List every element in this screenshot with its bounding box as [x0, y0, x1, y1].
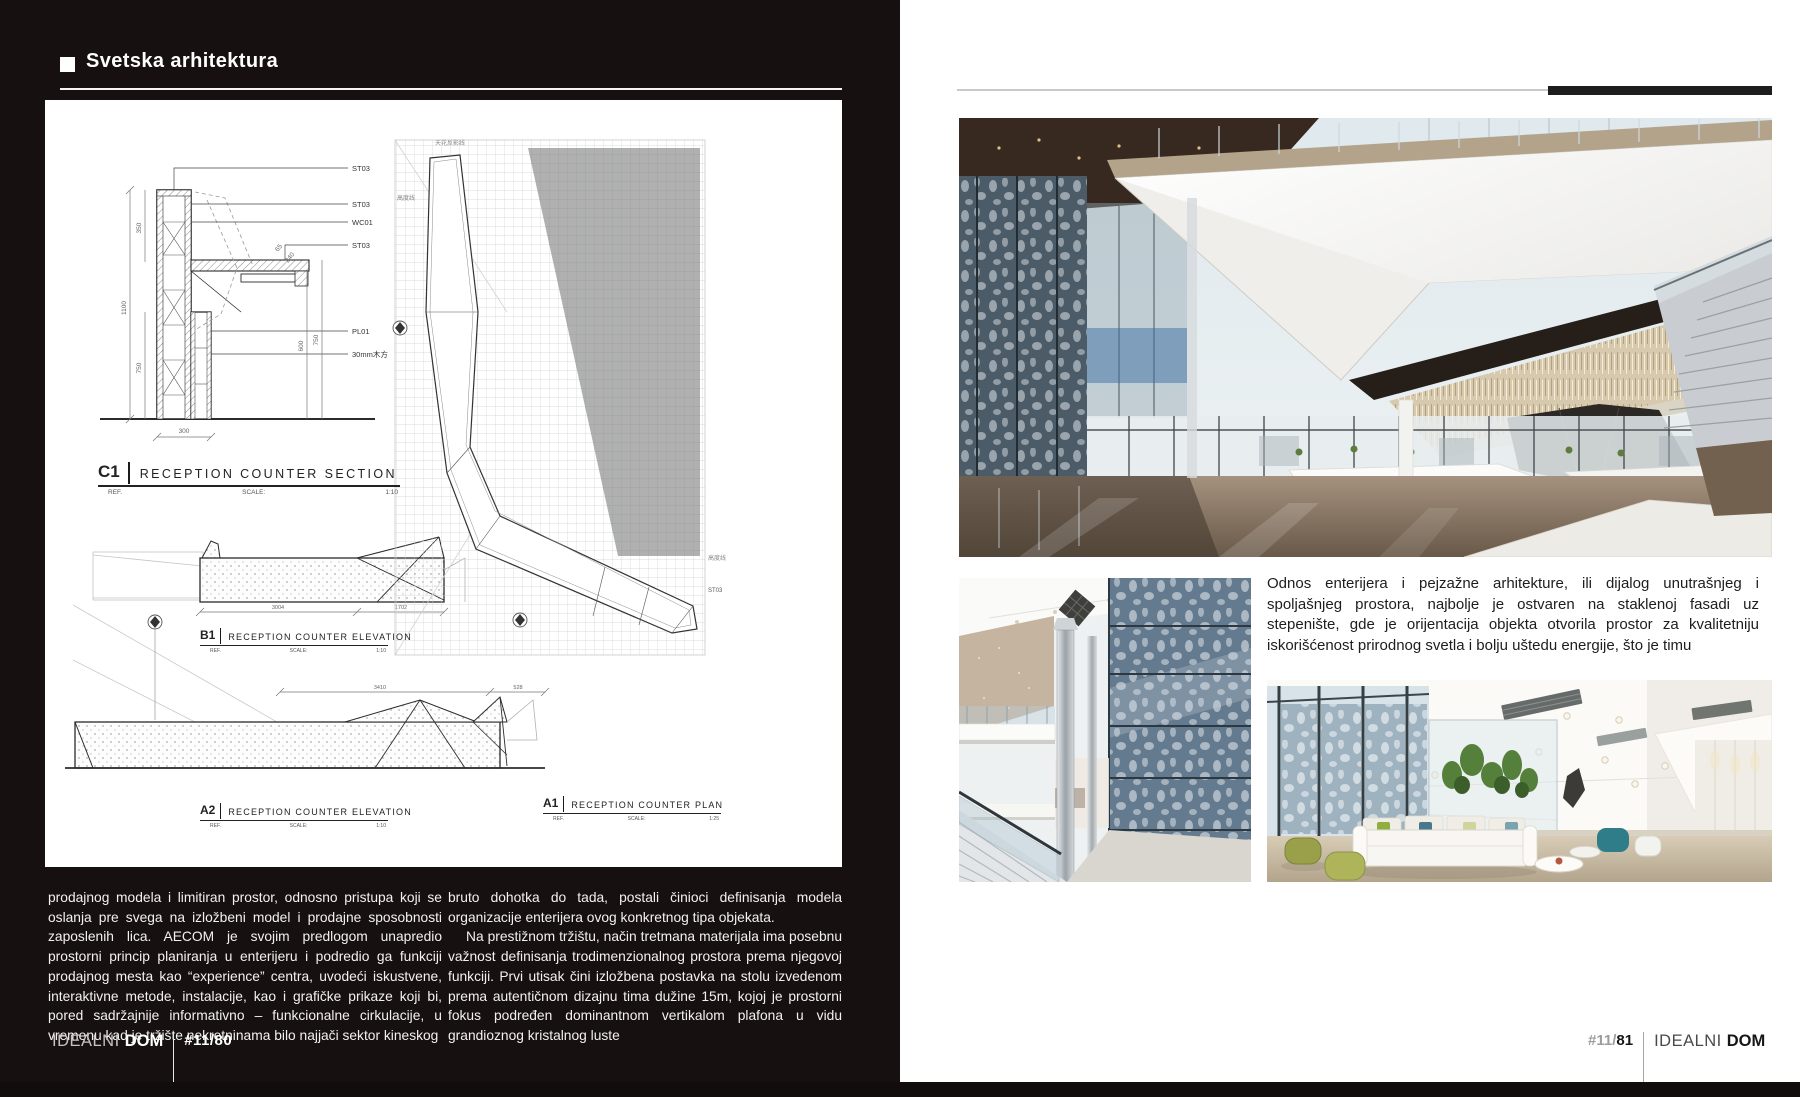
dim-3410: 3410 — [374, 685, 386, 691]
page-number: 81 — [1616, 1032, 1633, 1049]
section-title: Svetska arhitektura — [86, 50, 278, 73]
drawing-title: RECEPTION COUNTER PLAN — [564, 800, 723, 812]
drawing-title: RECEPTION COUNTER ELEVATION — [221, 807, 412, 819]
section-label: ST03 — [352, 200, 370, 209]
dim-350: 350 — [136, 222, 143, 233]
lounge-interior-photo — [1267, 680, 1772, 882]
brand-name: IDEALNI — [1654, 1032, 1722, 1051]
page-number-prefix: #11/ — [1588, 1032, 1616, 1049]
paragraph: Na prestižnom tržištu, način tretmana ma… — [448, 927, 842, 1045]
paragraph: bruto dohotka do tada, postali činioci d… — [448, 888, 842, 927]
ref-label: REF. — [553, 816, 564, 822]
plan-annotation: 高度线 — [708, 554, 726, 562]
staircase-photo-art — [959, 578, 1251, 882]
magazine-spread: Svetska arhitektura — [0, 0, 1800, 1097]
ref-label: REF. — [210, 648, 221, 654]
drawing-code: A2 — [200, 803, 221, 819]
scale-value: 1:10 — [376, 823, 386, 829]
scale-label: SCALE: — [242, 489, 265, 496]
plan-annotation: 天花反影线 — [435, 139, 465, 147]
footer-divider — [173, 1032, 174, 1082]
lobby-atrium-photo — [959, 118, 1772, 557]
ref-label: REF. — [210, 823, 221, 829]
section-label: PL01 — [352, 327, 370, 336]
section-label: ST03 — [352, 241, 370, 250]
dim-600: 600 — [298, 340, 305, 351]
section-label: WC01 — [352, 218, 373, 227]
dim-1100: 1100 — [121, 301, 128, 315]
header-rule — [60, 88, 842, 90]
plan-annotation: 高度线 — [397, 194, 415, 202]
drawing-code: A1 — [543, 796, 564, 812]
scale-label: SCALE: — [628, 816, 646, 822]
section-title-block: C1 RECEPTION COUNTER SECTION REF. SCALE:… — [98, 462, 400, 496]
plan-annotation: ST03 — [708, 588, 723, 594]
scale-label: SCALE: — [290, 648, 308, 654]
drawing-code: C1 — [98, 462, 130, 484]
elevation-a2-title-block: A2 RECEPTION COUNTER ELEVATION REF. SCAL… — [200, 803, 388, 829]
brand-name-bold: DOM — [1727, 1032, 1766, 1051]
article-paragraph: Odnos enterijera i pejzažne arhitekture,… — [1267, 574, 1759, 657]
header-rule-gray — [957, 89, 1548, 91]
scale-label: SCALE: — [290, 823, 308, 829]
body-column-1: prodajnog modela i limitiran prostor, od… — [48, 888, 442, 1046]
scale-value: 1:10 — [385, 489, 398, 496]
drawing-code: B1 — [200, 628, 221, 644]
dim-65: 65 — [274, 243, 284, 253]
elevation-b1-title-block: B1 RECEPTION COUNTER ELEVATION REF. SCAL… — [200, 628, 388, 654]
section-bullet-icon — [60, 57, 75, 72]
section-label: 30mm木方 — [352, 349, 388, 359]
dim-528: 528 — [513, 685, 522, 691]
left-page-footer: IDEALNI DOM #11/80 — [52, 1032, 232, 1082]
drawing-title: RECEPTION COUNTER ELEVATION — [221, 632, 412, 644]
dim-3004: 3004 — [272, 605, 284, 611]
lounge-photo-art — [1267, 680, 1772, 882]
technical-drawing-panel: ST03 ST03 WC01 ST03 PL01 30mm木方 — [45, 100, 842, 867]
header-bar-black — [1548, 86, 1772, 95]
footer-divider — [1643, 1032, 1644, 1084]
scale-value: 1:10 — [376, 648, 386, 654]
dim-750: 750 — [136, 362, 143, 373]
dim-750b: 750 — [313, 334, 320, 345]
plan-title-block: A1 RECEPTION COUNTER PLAN REF. SCALE: 1:… — [543, 796, 721, 822]
brand-name: IDEALNI — [52, 1032, 120, 1051]
plan-drawing: 天花反影线 高度线 高度线 ST03 — [393, 139, 726, 655]
dim-300: 300 — [179, 428, 190, 435]
brand-name-bold: DOM — [125, 1032, 164, 1051]
body-column-2: bruto dohotka do tada, postali činioci d… — [448, 888, 842, 1046]
drawing-title: RECEPTION COUNTER SECTION — [130, 467, 397, 484]
ref-label: REF. — [108, 489, 122, 496]
page-number: #11/80 — [184, 1032, 232, 1049]
right-page-footer: #11/ 81 IDEALNI DOM — [1588, 1032, 1765, 1084]
scale-value: 1:25 — [709, 816, 719, 822]
lobby-photo-art — [959, 118, 1772, 557]
page-bottom-strip — [0, 1082, 1800, 1097]
section-label: ST03 — [352, 164, 370, 173]
left-page: Svetska arhitektura — [0, 0, 900, 1097]
section-drawing: ST03 ST03 WC01 ST03 PL01 30mm木方 — [100, 164, 388, 441]
staircase-atrium-photo — [959, 578, 1251, 882]
